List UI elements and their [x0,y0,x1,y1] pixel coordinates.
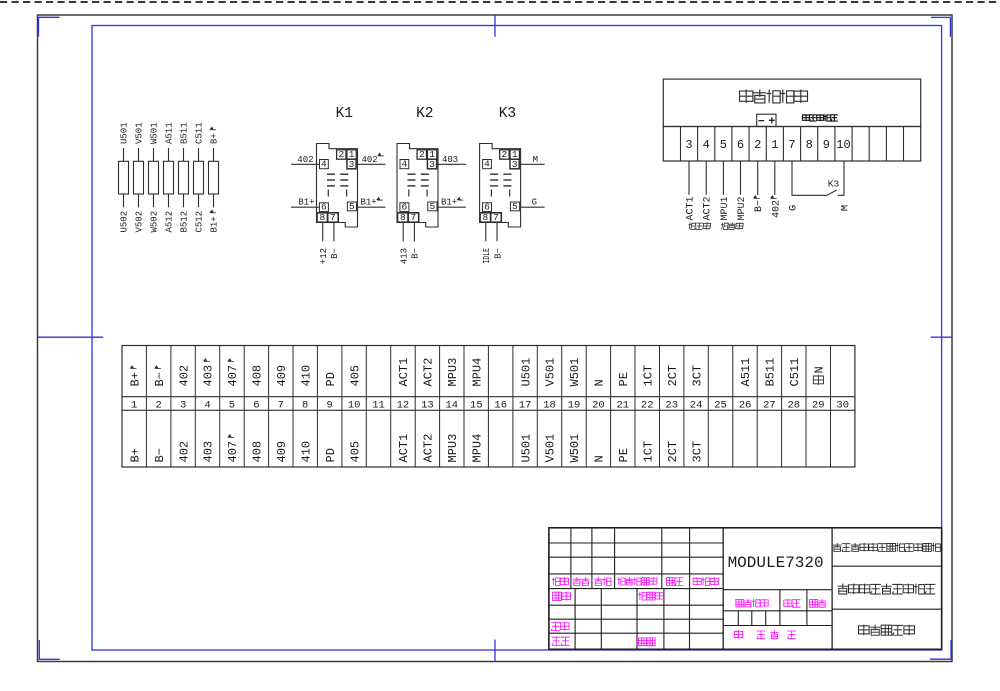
svg-text:23: 23 [665,400,678,412]
svg-text:W501: W501 [568,358,582,387]
svg-text:6: 6 [253,400,259,412]
svg-text:B−: B− [754,200,765,212]
svg-text:13: 13 [421,400,434,412]
svg-text:MPU4: MPU4 [470,434,484,463]
svg-text:N: N [593,455,607,462]
svg-text:B+: B+ [128,448,142,462]
svg-text:4: 4 [204,400,210,412]
svg-text:405: 405 [348,441,362,463]
svg-text:ACT1: ACT1 [397,358,411,387]
svg-text:PD: PD [324,372,338,386]
svg-text:25: 25 [714,400,727,412]
svg-text:2CT: 2CT [666,441,680,463]
svg-text:22: 22 [641,400,654,412]
svg-text:1: 1 [771,138,778,152]
svg-text:MPU3: MPU3 [446,434,460,463]
svg-text:V501: V501 [544,358,558,387]
svg-text:ACT2: ACT2 [703,197,714,221]
svg-text:3CT: 3CT [690,441,704,463]
svg-text:MODULE7320: MODULE7320 [728,554,824,572]
svg-text:9: 9 [823,138,830,152]
svg-text:1CT: 1CT [641,441,655,463]
svg-text:409: 409 [275,441,289,463]
svg-text:ACT1: ACT1 [397,434,411,463]
svg-text:M: M [533,155,538,165]
svg-text:PE: PE [617,372,631,386]
svg-text:B−: B− [153,372,167,386]
svg-text:24: 24 [690,400,703,412]
svg-text:N: N [813,366,827,373]
svg-text:2: 2 [338,149,344,160]
svg-text:B−: B− [153,448,167,462]
svg-text:W501: W501 [150,122,160,144]
svg-text:B1+: B1+ [298,198,314,208]
svg-text:28: 28 [787,400,800,412]
svg-text:MPU1: MPU1 [720,197,731,221]
svg-text:PD: PD [324,448,338,462]
svg-text:7: 7 [493,212,499,223]
svg-text:7: 7 [411,212,417,223]
svg-text:11: 11 [372,400,385,412]
svg-text:U502: U502 [120,211,130,233]
svg-text:2: 2 [754,138,761,152]
svg-text:B+: B+ [128,372,142,386]
svg-text:29: 29 [812,400,825,412]
svg-text:410: 410 [299,365,313,387]
svg-text:6: 6 [484,202,490,213]
svg-text:2: 2 [155,400,161,412]
svg-text:V501: V501 [135,122,145,144]
svg-text:C512: C512 [195,211,205,233]
svg-text:+12: +12 [319,248,329,264]
svg-text:3: 3 [349,159,355,170]
svg-text:8: 8 [400,212,406,223]
svg-text:5: 5 [430,201,436,212]
svg-text:MPU2: MPU2 [737,197,748,221]
svg-text:V502: V502 [135,211,145,233]
svg-text:1: 1 [131,400,137,412]
svg-text:7: 7 [788,138,795,152]
svg-text:408: 408 [251,365,265,387]
svg-text:6: 6 [321,202,327,213]
svg-text:403: 403 [202,441,216,463]
svg-text:10: 10 [348,400,361,412]
svg-text:A511: A511 [165,122,175,144]
svg-text:2: 2 [502,149,508,160]
svg-text:2: 2 [419,149,425,160]
svg-text:408: 408 [251,441,265,463]
svg-text:B512: B512 [180,211,190,233]
svg-text:409: 409 [275,365,289,387]
svg-text:3: 3 [512,159,518,170]
svg-text:K3: K3 [828,179,840,190]
svg-text:B1+: B1+ [441,198,457,208]
svg-text:8: 8 [806,138,813,152]
svg-text:14: 14 [445,400,458,412]
svg-text:4: 4 [484,159,490,170]
svg-text:7: 7 [330,212,336,223]
svg-text:W501: W501 [568,434,582,463]
svg-text:21: 21 [616,400,629,412]
svg-text:U501: U501 [519,434,533,463]
svg-text:5: 5 [349,201,355,212]
svg-text:7: 7 [278,400,284,412]
svg-text:K3: K3 [499,106,516,122]
svg-text:V501: V501 [544,434,558,463]
svg-text:8: 8 [319,212,325,223]
svg-text:B511: B511 [764,358,778,387]
svg-text:8: 8 [483,212,489,223]
svg-text:6: 6 [737,138,744,152]
svg-text:20: 20 [592,400,605,412]
svg-text:MPU3: MPU3 [446,358,460,387]
svg-text:18: 18 [543,400,556,412]
svg-text:4: 4 [321,159,327,170]
svg-text:B511: B511 [180,122,190,144]
svg-text:8: 8 [302,400,308,412]
svg-text:ACT1: ACT1 [686,197,697,221]
svg-text:15: 15 [470,400,483,412]
svg-text:MPU4: MPU4 [470,358,484,387]
svg-text:12: 12 [397,400,410,412]
svg-text:30: 30 [836,400,849,412]
svg-text:19: 19 [568,400,581,412]
svg-text:403: 403 [442,155,458,165]
svg-text:B−: B− [493,248,503,259]
svg-text:27: 27 [763,400,776,412]
svg-text:B1+: B1+ [210,216,220,232]
svg-text:3: 3 [685,138,692,152]
svg-text:B−: B− [330,248,340,259]
svg-text:G: G [788,205,800,211]
svg-text:10: 10 [836,138,850,152]
svg-text:B−: B− [411,248,421,259]
svg-text:5: 5 [229,400,235,412]
svg-text:U501: U501 [120,122,130,144]
svg-text:1CT: 1CT [641,365,655,387]
svg-text:402: 402 [177,365,191,387]
svg-text:IDLE: IDLE [482,248,492,264]
svg-text:402: 402 [177,441,191,463]
svg-text:W502: W502 [150,211,160,233]
svg-text:407: 407 [226,441,240,463]
svg-text:9: 9 [327,400,333,412]
svg-text:17: 17 [519,400,532,412]
svg-text:402: 402 [297,155,313,165]
svg-text:26: 26 [739,400,752,412]
svg-text:410: 410 [299,441,313,463]
svg-text:407: 407 [226,365,240,387]
svg-text:C511: C511 [788,358,802,387]
svg-text:405: 405 [348,365,362,387]
svg-text:6: 6 [402,202,408,213]
svg-text:K1: K1 [336,106,353,122]
svg-text:3: 3 [429,159,435,170]
svg-text:403: 403 [202,365,216,387]
svg-text:A511: A511 [739,358,753,387]
svg-text:M: M [840,205,852,211]
svg-text:16: 16 [494,400,507,412]
svg-text:ACT2: ACT2 [422,434,436,463]
svg-text:ACT2: ACT2 [422,358,436,387]
svg-text:3: 3 [180,400,186,412]
svg-text:3CT: 3CT [690,365,704,387]
svg-text:4: 4 [402,159,408,170]
svg-text:413: 413 [400,248,410,264]
svg-text:B1+: B1+ [361,198,377,208]
svg-text:4: 4 [703,138,710,152]
svg-text:2CT: 2CT [666,365,680,387]
svg-text:402: 402 [362,155,378,165]
svg-text:A512: A512 [165,211,175,233]
svg-text:B+: B+ [210,133,220,144]
svg-text:G: G [532,198,537,208]
svg-text:5: 5 [512,201,518,212]
svg-text:K2: K2 [416,106,433,122]
svg-text:402: 402 [771,200,782,218]
svg-text:C511: C511 [195,122,205,144]
svg-text:U501: U501 [519,358,533,387]
svg-text:N: N [593,379,607,386]
svg-text:5: 5 [720,138,727,152]
svg-text:PE: PE [617,448,631,462]
